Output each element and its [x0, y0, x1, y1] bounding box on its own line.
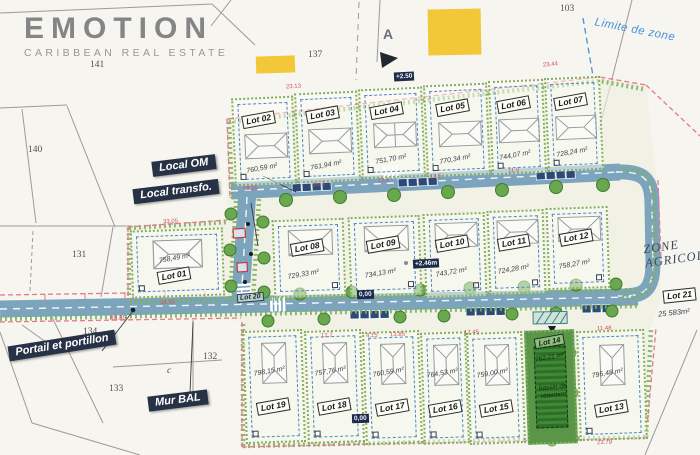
dim-label: 18.35: [243, 185, 258, 192]
house-icon: [379, 343, 406, 386]
dim-label: 16.3: [313, 182, 325, 189]
annex-marker: [332, 282, 338, 288]
logo-subtitle: CARIBBEAN REAL ESTATE: [24, 47, 228, 59]
dim-label: 13.5: [430, 174, 442, 181]
annex-marker: [373, 432, 379, 438]
lot-15: 759,00 m² Lot 15: [466, 331, 526, 445]
dim-label: 33.05: [163, 219, 178, 226]
house-icon: [438, 120, 483, 148]
dim-label: 34.95: [160, 300, 175, 307]
lot-area: 770,34 m²: [439, 153, 471, 166]
annex-marker: [240, 174, 246, 180]
lot-area: 728,24 m²: [556, 146, 588, 159]
lot-area: 760,59 m²: [246, 162, 278, 175]
dim-label: 11.9: [508, 168, 520, 175]
lot-17: 760,59 m² Lot 17: [362, 330, 423, 445]
lot-label: Lot 13: [594, 399, 629, 417]
annex-marker: [433, 165, 439, 171]
basin-note: bassin de rétention: [532, 382, 573, 402]
dim-label: 12.7: [321, 333, 333, 339]
lot-area: 734,13 m²: [364, 267, 396, 279]
lot-14-retention-basin: Lot 14 762,21 m² bassin de rétention: [524, 329, 578, 445]
house-icon: [555, 114, 598, 141]
dim-label: 13.85: [390, 332, 405, 339]
lot-18: 757,76 m² Lot 18: [304, 329, 365, 444]
lot-13: 795,48 m² Lot 13: [576, 329, 648, 441]
logo-title: EMOTION: [24, 14, 228, 44]
dim-label: 23.13: [286, 83, 301, 90]
annex-marker: [586, 428, 592, 434]
annex-marker: [554, 160, 560, 166]
dim-label: 17.45: [464, 330, 479, 337]
lot-03: Lot 03 761,94 m²: [294, 91, 361, 184]
lot-label: Lot 05: [435, 98, 470, 116]
lot-label: Lot 02: [241, 110, 276, 128]
dim-label: 4.15: [366, 333, 378, 339]
parcel-132: 132: [203, 352, 217, 362]
parcel-141: 141: [90, 60, 104, 70]
annex-marker: [596, 274, 602, 280]
lot-10: Lot 10 743,72 m²: [423, 212, 488, 298]
lot-area: 729,33 m²: [287, 269, 319, 281]
annex-marker: [139, 285, 145, 291]
house-icon: [373, 121, 418, 149]
house-icon: [244, 132, 289, 160]
lot-06: Lot 06 744,07 m²: [488, 79, 547, 175]
level-badge-mid: +2.46m: [413, 258, 440, 268]
house-icon: [260, 342, 287, 385]
annex-marker: [532, 279, 538, 285]
survey-flag: [380, 52, 398, 68]
annex-marker: [303, 171, 309, 177]
parcel-103: 103: [560, 4, 574, 14]
house-icon: [597, 343, 628, 386]
parcel-140: 140: [28, 145, 42, 155]
lot-label: Lot 06: [496, 95, 531, 113]
parcel-137: 137: [308, 50, 322, 60]
lot-label: Lot 16: [428, 399, 463, 417]
annex-marker: [367, 167, 373, 173]
house-icon: [432, 344, 459, 387]
zone-limit-line: [583, 18, 593, 76]
lot-08: Lot 08 729,33 m²: [272, 218, 347, 298]
annex-marker: [498, 163, 504, 169]
lot-area: 761,94 m²: [310, 159, 342, 172]
dim-label: 89.85: [110, 315, 127, 323]
lot-area: 743,72 m²: [435, 266, 467, 278]
annex-marker: [408, 281, 414, 287]
lot-label: Lot 03: [305, 105, 340, 123]
lot-07: Lot 07 728,24 m²: [544, 76, 604, 172]
lot-01: 758,49 m² Lot 01: [130, 227, 225, 298]
house-icon: [321, 342, 348, 385]
parcel-133: 133: [109, 384, 123, 394]
lot-16: 764,53 m² Lot 16: [420, 331, 470, 445]
lot-label: Lot 19: [256, 397, 291, 415]
annex-marker: [431, 431, 437, 437]
level-badge-zero-lot: 0,00: [352, 414, 369, 424]
site-plan: EMOTION CARIBBEAN REAL ESTATE 141 140 13…: [0, 0, 700, 455]
house-icon: [308, 127, 353, 155]
lot-02: Lot 02 760,59 m²: [231, 96, 297, 187]
lot-area: 758,27 m²: [558, 258, 590, 270]
survey-point-a-label: A: [383, 26, 393, 42]
dim-label: 23.79: [597, 440, 612, 447]
yellow-highlight-small: [256, 55, 296, 73]
lot-04: Lot 04 751,70 m²: [358, 87, 426, 180]
parcel-c: c: [167, 366, 171, 376]
house-icon: [498, 117, 541, 144]
lot-label: Lot 17: [375, 398, 410, 416]
lot-05: Lot 05 770,34 m²: [423, 83, 491, 178]
dim-label: 11.48: [597, 326, 612, 333]
dim-label: 13.4: [378, 178, 390, 185]
lot-label: Lot 18: [317, 397, 352, 415]
yellow-highlight-large: [428, 9, 482, 56]
annex-marker: [253, 431, 259, 437]
lot-11: Lot 11 724,28 m²: [487, 209, 547, 295]
parcel-131: 131: [72, 250, 86, 260]
lot-09: Lot 09 734,13 m²: [348, 215, 423, 297]
lot-19: 798,15 m² Lot 19: [242, 329, 306, 444]
lot-area: 744,07 m²: [499, 149, 531, 162]
house-icon: [483, 344, 510, 387]
lot-label: Lot 04: [369, 101, 404, 119]
lot-area: 751,70 m²: [375, 153, 407, 166]
lot-label: Lot 15: [479, 399, 514, 417]
level-badge-zero-road: 0,00: [357, 290, 374, 300]
hatched-patch: [533, 311, 567, 324]
annex-marker: [477, 431, 483, 437]
logo: EMOTION CARIBBEAN REAL ESTATE: [24, 14, 228, 59]
lot-area: 724,28 m²: [497, 263, 529, 275]
level-badge-top: +2.50: [394, 71, 415, 81]
annex-marker: [473, 282, 479, 288]
lot-12: Lot 12 758,27 m²: [546, 206, 611, 290]
lot-label: Lot 07: [553, 92, 588, 110]
annex-marker: [315, 431, 321, 437]
